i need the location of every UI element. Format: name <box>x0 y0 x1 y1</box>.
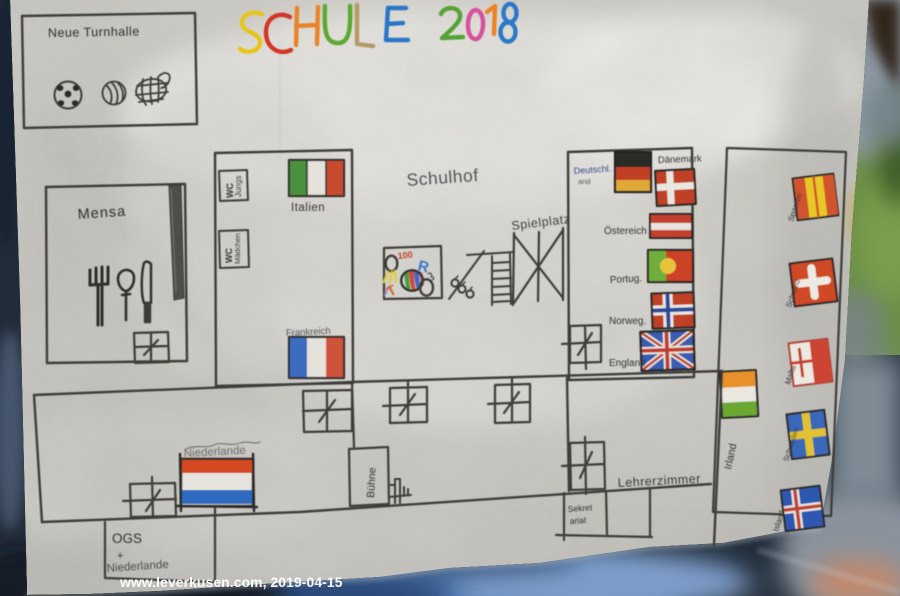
svg-text:100: 100 <box>397 249 413 261</box>
svg-text:Bühne: Bühne <box>365 467 379 498</box>
svg-text:WC: WC <box>225 183 235 198</box>
svg-text:Sekret: Sekret <box>567 502 593 514</box>
svg-text:www.leverkusen.com, 2019-04-15: www.leverkusen.com, 2019-04-15 <box>119 574 343 590</box>
svg-text:Neue Turnhalle: Neue Turnhalle <box>48 24 140 40</box>
svg-text:Mensa: Mensa <box>77 204 127 223</box>
svg-text:Italien: Italien <box>291 202 325 214</box>
svg-text:+: + <box>117 550 123 562</box>
svg-text:Dänemark: Dänemark <box>658 153 702 166</box>
svg-text:Norweg.: Norweg. <box>609 316 646 327</box>
svg-text:ariat: ariat <box>569 515 587 526</box>
svg-text:Mädchen: Mädchen <box>233 233 242 264</box>
svg-text:Östereich: Östereich <box>604 225 647 237</box>
svg-text:and: and <box>578 177 591 186</box>
svg-text:OGS: OGS <box>112 531 142 546</box>
svg-text:WC: WC <box>224 248 234 263</box>
svg-text:Portug.: Portug. <box>610 273 643 286</box>
svg-text:Frankreich: Frankreich <box>286 326 331 339</box>
svg-text:England: England <box>609 358 646 369</box>
svg-text:Jungs: Jungs <box>234 176 243 197</box>
